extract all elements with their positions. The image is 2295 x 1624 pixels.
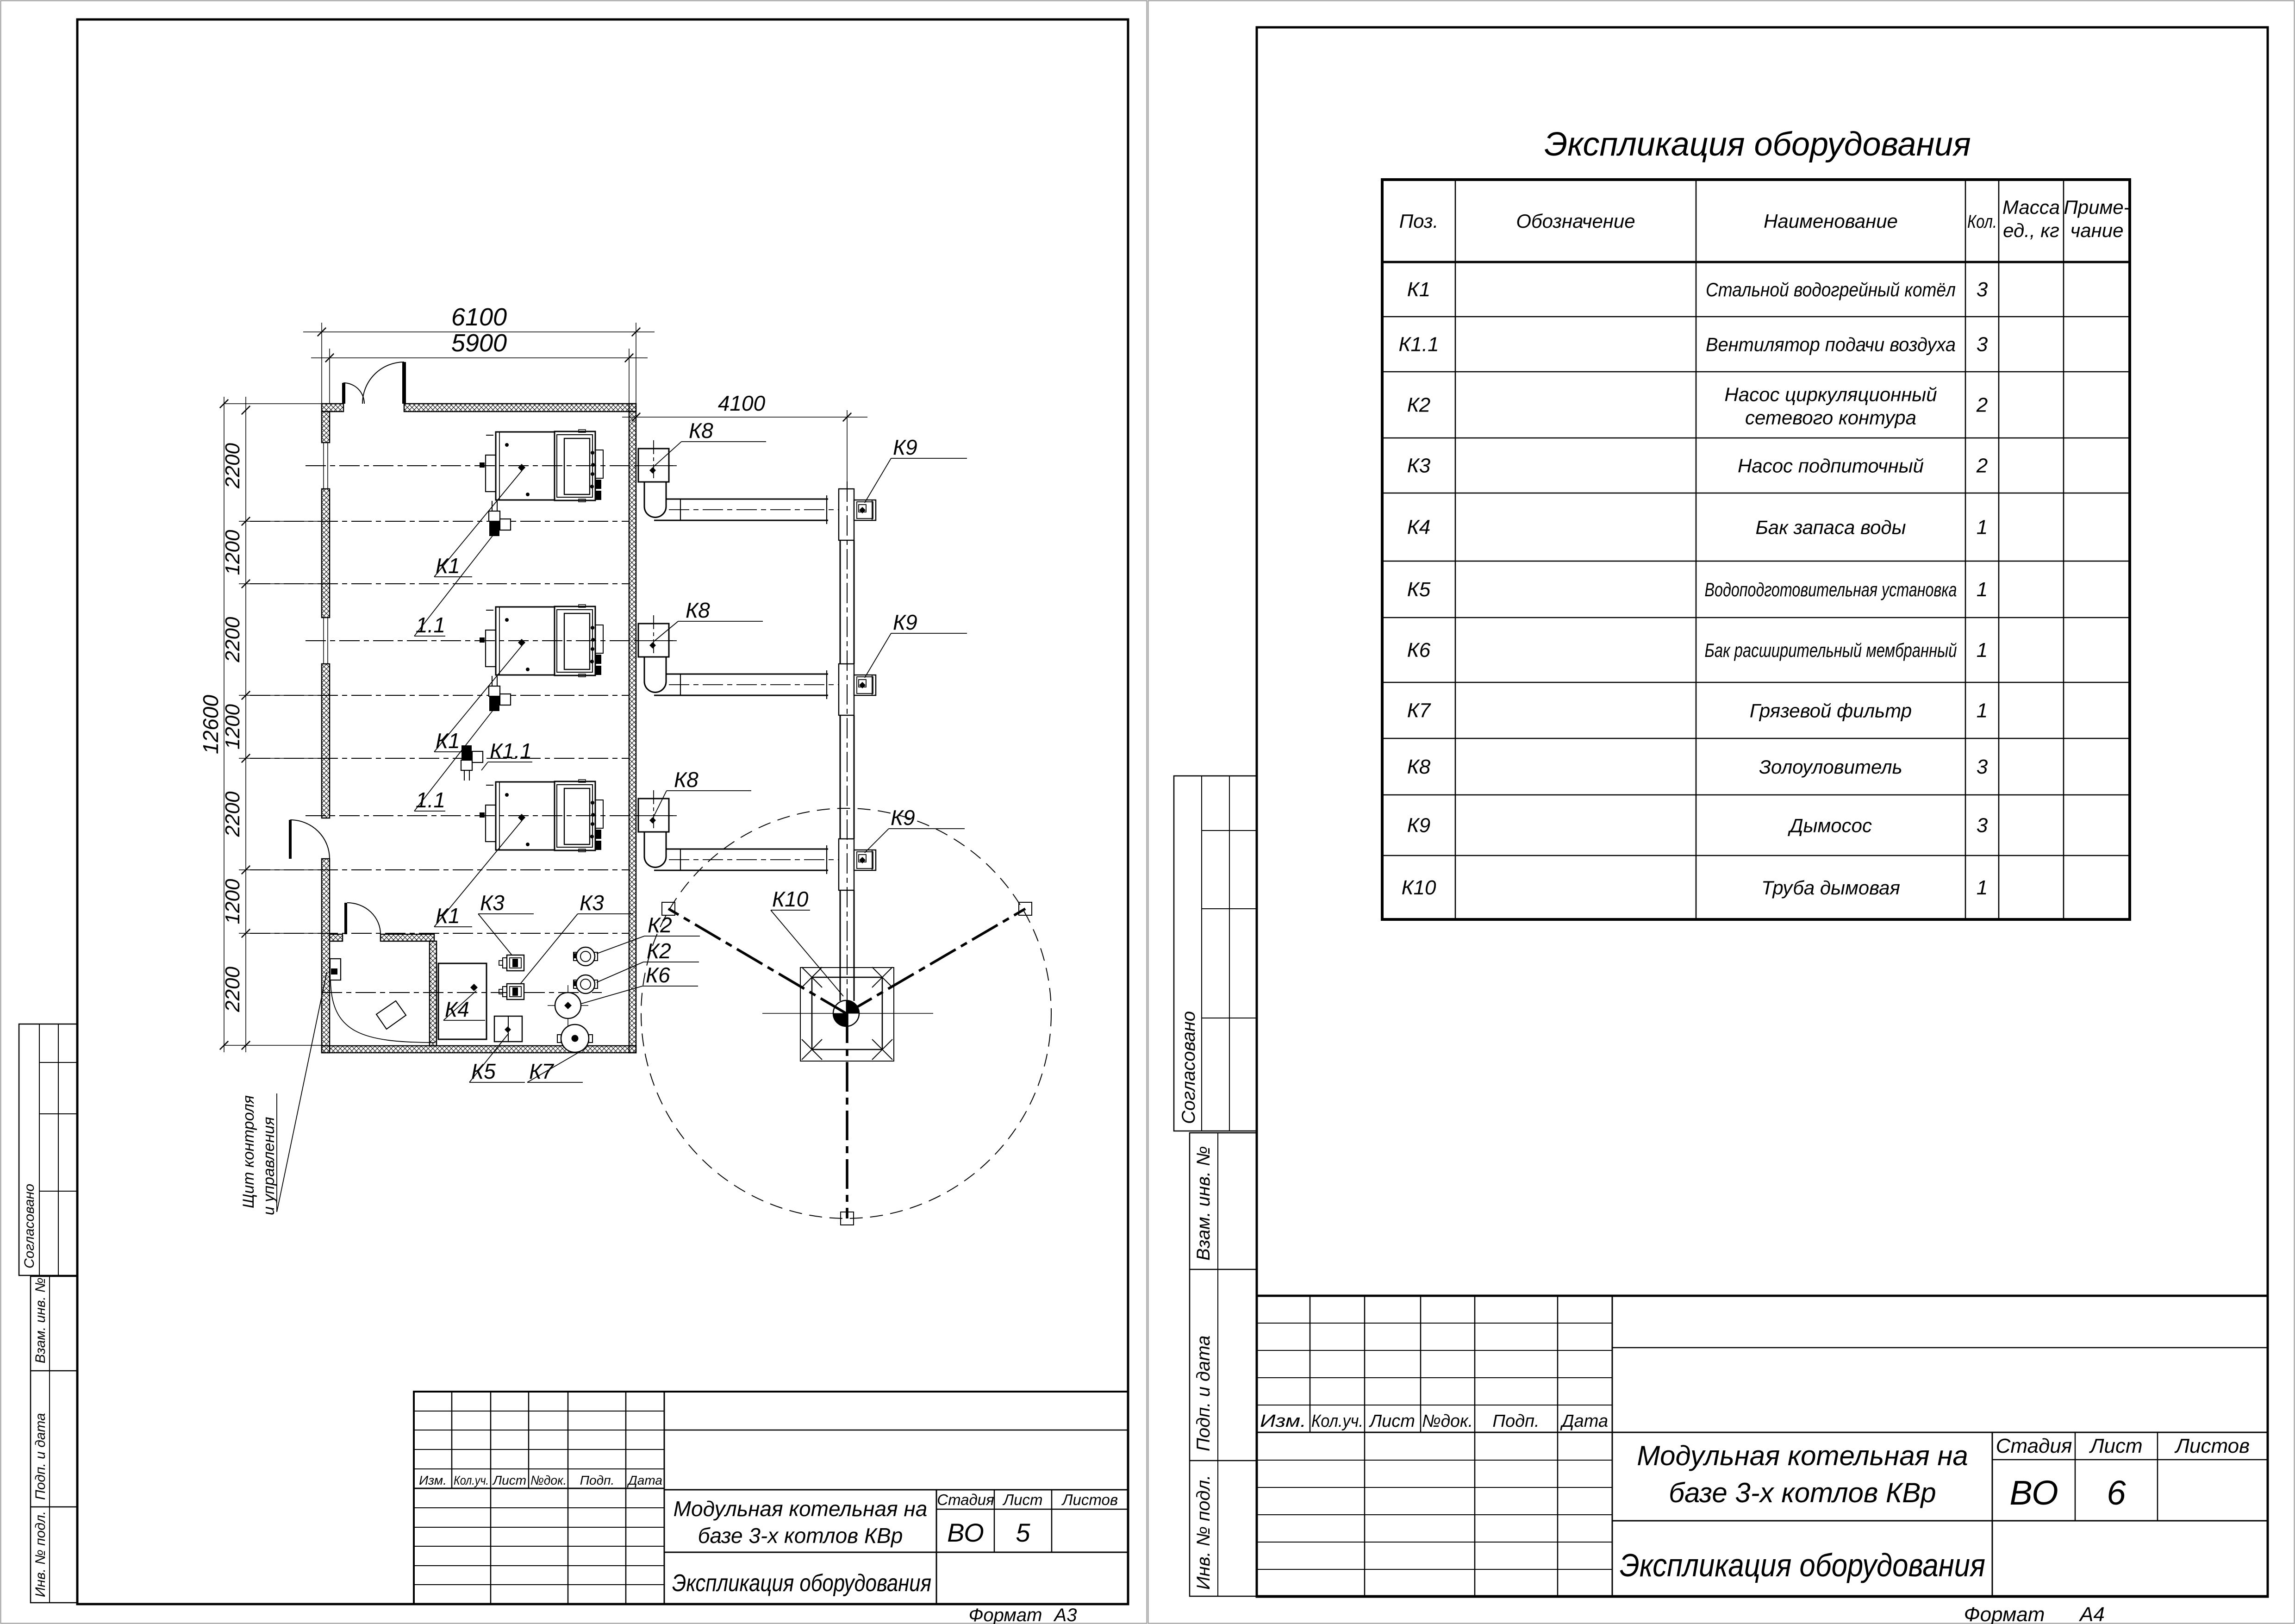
svg-text:К5: К5 — [1407, 578, 1431, 601]
svg-text:1: 1 — [1977, 578, 1988, 601]
svg-text:К3: К3 — [1407, 455, 1431, 477]
svg-text:1: 1 — [1977, 639, 1988, 662]
svg-text:базе 3-х котлов КВр: базе 3-х котлов КВр — [698, 1524, 903, 1548]
svg-text:сетевого контура: сетевого контура — [1745, 407, 1916, 429]
svg-text:Модульная котельная на: Модульная котельная на — [674, 1497, 928, 1521]
svg-text:1: 1 — [1977, 876, 1988, 899]
svg-text:Приме-: Приме- — [2064, 196, 2130, 218]
svg-text:4100: 4100 — [718, 391, 766, 415]
svg-text:ед., кг: ед., кг — [2003, 219, 2059, 241]
svg-text:К8: К8 — [674, 768, 698, 792]
svg-text:К3: К3 — [580, 891, 604, 915]
svg-text:Кол.: Кол. — [1967, 212, 1997, 232]
svg-text:К1.1: К1.1 — [1398, 333, 1439, 356]
svg-text:3: 3 — [1977, 814, 1988, 837]
svg-text:К5: К5 — [471, 1059, 496, 1083]
svg-text:1.1: 1.1 — [416, 613, 445, 637]
svg-text:К6: К6 — [646, 963, 670, 987]
svg-text:Масса: Масса — [2002, 196, 2060, 218]
svg-text:Стадия: Стадия — [937, 1491, 994, 1508]
svg-text:Обозначение: Обозначение — [1516, 210, 1635, 232]
svg-text:1200: 1200 — [221, 704, 244, 750]
svg-text:№док.: №док. — [530, 1473, 567, 1487]
svg-text:чание: чание — [2070, 219, 2124, 241]
svg-text:Изм.: Изм. — [419, 1473, 447, 1487]
svg-text:К1.1: К1.1 — [490, 739, 532, 763]
svg-text:Кол.уч.: Кол.уч. — [1311, 1412, 1363, 1431]
svg-text:К2: К2 — [648, 913, 672, 937]
svg-text:5900: 5900 — [451, 329, 507, 357]
svg-text:К9: К9 — [1407, 814, 1430, 837]
svg-text:1200: 1200 — [221, 530, 244, 575]
svg-text:К2: К2 — [1407, 394, 1430, 417]
svg-text:ВО: ВО — [947, 1518, 984, 1547]
svg-text:Листов: Листов — [1061, 1491, 1118, 1508]
svg-text:К8: К8 — [689, 418, 713, 443]
svg-text:Формат: Формат — [1964, 1603, 2045, 1624]
svg-text:6100: 6100 — [451, 303, 507, 331]
svg-text:Кол.уч.: Кол.уч. — [454, 1473, 489, 1487]
svg-text:А4: А4 — [2078, 1603, 2105, 1624]
svg-text:К8: К8 — [686, 598, 710, 622]
svg-text:К1: К1 — [436, 554, 460, 578]
svg-text:Наименование: Наименование — [1764, 210, 1898, 232]
svg-text:Насос циркуляционный: Насос циркуляционный — [1724, 384, 1937, 406]
svg-text:Труба дымовая: Труба дымовая — [1761, 877, 1900, 899]
svg-text:Лист: Лист — [492, 1473, 526, 1487]
svg-text:Подп. и дата: Подп. и дата — [1193, 1336, 1214, 1451]
svg-text:К1: К1 — [436, 729, 460, 753]
svg-text:2200: 2200 — [221, 443, 244, 489]
svg-text:К1: К1 — [1407, 278, 1430, 301]
svg-text:3: 3 — [1977, 756, 1988, 778]
svg-text:К9: К9 — [893, 435, 917, 459]
svg-text:Согласовано: Согласовано — [1179, 1011, 1199, 1124]
svg-text:Экспликация оборудования: Экспликация оборудования — [1544, 126, 1971, 163]
svg-text:Подп.: Подп. — [580, 1473, 615, 1487]
svg-text:К8: К8 — [1407, 756, 1431, 778]
svg-text:2200: 2200 — [221, 791, 244, 837]
svg-text:К1: К1 — [436, 904, 460, 928]
svg-text:ВО: ВО — [2009, 1474, 2058, 1512]
svg-text:Дата: Дата — [1560, 1412, 1608, 1431]
svg-text:6: 6 — [2107, 1474, 2126, 1512]
svg-text:К4: К4 — [1407, 516, 1430, 539]
svg-text:Щит контроля: Щит контроля — [240, 1095, 257, 1208]
svg-text:2: 2 — [1976, 455, 1988, 477]
svg-text:Лист: Лист — [1368, 1412, 1415, 1431]
svg-text:1: 1 — [1977, 700, 1988, 722]
svg-text:К6: К6 — [1407, 639, 1431, 662]
svg-text:К7: К7 — [529, 1059, 554, 1083]
svg-text:Экспликация оборудования: Экспликация оборудования — [1620, 1547, 1985, 1583]
svg-text:К9: К9 — [893, 610, 917, 634]
svg-text:2: 2 — [1976, 394, 1988, 417]
svg-text:К7: К7 — [1407, 700, 1431, 722]
svg-text:К10: К10 — [772, 887, 809, 911]
svg-text:Подп. и дата: Подп. и дата — [33, 1413, 48, 1500]
svg-text:Вентилятор подачи воздуха: Вентилятор подачи воздуха — [1706, 334, 1956, 356]
svg-text:Подп.: Подп. — [1492, 1412, 1539, 1431]
svg-text:Модульная котельная на: Модульная котельная на — [1637, 1440, 1968, 1471]
svg-text:Бак расширительный мембранный: Бак расширительный мембранный — [1705, 639, 1957, 661]
svg-text:5: 5 — [1016, 1518, 1030, 1547]
svg-text:Формат: Формат — [969, 1605, 1042, 1624]
svg-text:Дымосос: Дымосос — [1788, 815, 1872, 837]
svg-text:Бак запаса воды: Бак запаса воды — [1755, 517, 1906, 538]
svg-text:Лист: Лист — [1003, 1491, 1043, 1508]
svg-text:Насос подпиточный: Насос подпиточный — [1738, 455, 1924, 477]
svg-text:К9: К9 — [891, 806, 915, 830]
svg-text:Лист: Лист — [2089, 1435, 2142, 1457]
svg-text:Экспликация оборудования: Экспликация оборудования — [672, 1570, 931, 1597]
svg-text:Взам. инв. №: Взам. инв. № — [33, 1277, 48, 1363]
svg-text:Стальной водогрейный котёл: Стальной водогрейный котёл — [1706, 279, 1956, 300]
svg-text:Согласовано: Согласовано — [22, 1184, 37, 1268]
svg-text:Инв. № подл.: Инв. № подл. — [33, 1511, 48, 1597]
svg-text:1.1: 1.1 — [416, 788, 445, 812]
svg-text:№док.: №док. — [1422, 1412, 1473, 1431]
svg-text:Дата: Дата — [627, 1473, 662, 1487]
svg-text:12600: 12600 — [199, 695, 223, 754]
svg-text:К4: К4 — [445, 997, 469, 1021]
svg-text:Водоподготовительная установка: Водоподготовительная установка — [1705, 579, 1957, 600]
svg-text:Изм.: Изм. — [1260, 1412, 1306, 1431]
svg-text:Грязевой фильтр: Грязевой фильтр — [1750, 700, 1912, 722]
svg-text:и управления: и управления — [260, 1117, 278, 1215]
svg-text:К3: К3 — [480, 891, 505, 915]
svg-text:3: 3 — [1977, 333, 1988, 356]
svg-text:Инв. № подл.: Инв. № подл. — [1193, 1475, 1214, 1590]
svg-text:А3: А3 — [1054, 1605, 1077, 1624]
svg-text:1200: 1200 — [221, 879, 244, 924]
svg-text:3: 3 — [1977, 278, 1988, 301]
svg-text:Взам. инв. №: Взам. инв. № — [1193, 1146, 1214, 1261]
svg-text:К2: К2 — [647, 939, 671, 963]
svg-text:1: 1 — [1977, 516, 1988, 539]
svg-text:2200: 2200 — [221, 617, 244, 662]
svg-text:2200: 2200 — [221, 967, 244, 1012]
svg-text:К10: К10 — [1402, 876, 1436, 899]
svg-text:Золоуловитель: Золоуловитель — [1759, 756, 1902, 778]
svg-text:Стадия: Стадия — [1996, 1435, 2072, 1457]
svg-text:базе 3-х котлов КВр: базе 3-х котлов КВр — [1669, 1477, 1936, 1508]
svg-text:Поз.: Поз. — [1399, 210, 1439, 232]
svg-text:Листов: Листов — [2174, 1435, 2250, 1457]
